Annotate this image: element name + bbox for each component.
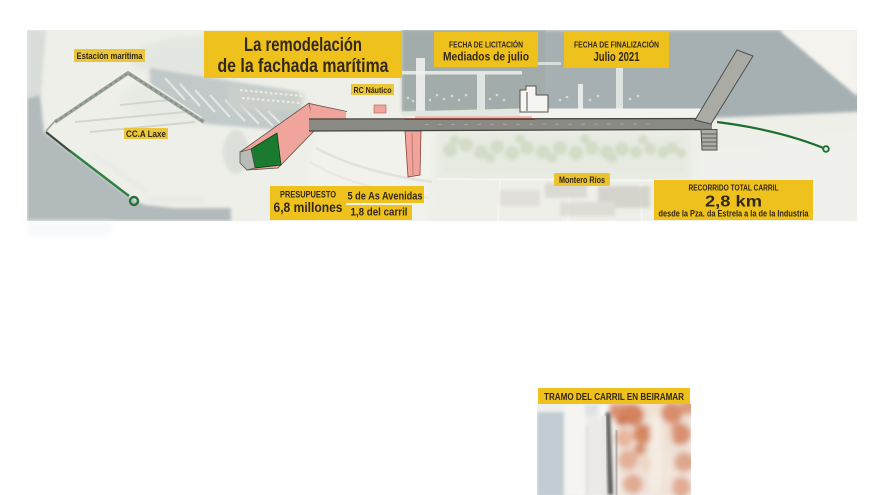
svg-text:Mediados de julio: Mediados de julio bbox=[443, 52, 529, 64]
svg-text:desde la Pza. da Estrela a la: desde la Pza. da Estrela a la de la Indu… bbox=[659, 209, 810, 219]
svg-text:TRAMO DEL CARRIL EN BEIRAMAR: TRAMO DEL CARRIL EN BEIRAMAR bbox=[544, 392, 685, 403]
svg-text:La remodelación: La remodelación bbox=[244, 35, 362, 56]
svg-text:5 de As Avenidas: 5 de As Avenidas bbox=[348, 191, 423, 203]
svg-text:RECORRIDO TOTAL CARRIL: RECORRIDO TOTAL CARRIL bbox=[689, 183, 779, 193]
svg-text:FECHA DE FINALIZACIÓN: FECHA DE FINALIZACIÓN bbox=[574, 41, 659, 50]
svg-text:CC.A Laxe: CC.A Laxe bbox=[126, 129, 166, 139]
svg-text:Montero Ríos: Montero Ríos bbox=[559, 175, 605, 186]
svg-text:PRESUPUESTO: PRESUPUESTO bbox=[280, 190, 336, 200]
svg-text:de la fachada marítima: de la fachada marítima bbox=[218, 56, 389, 77]
svg-text:1,8 del carril: 1,8 del carril bbox=[351, 207, 408, 219]
svg-text:6,8 millones: 6,8 millones bbox=[274, 199, 343, 215]
svg-text:Julio 2021: Julio 2021 bbox=[594, 50, 640, 64]
svg-text:Estación marítima: Estación marítima bbox=[77, 51, 144, 62]
svg-text:FECHA DE LICITACIÓN: FECHA DE LICITACIÓN bbox=[449, 41, 523, 50]
svg-text:RC Náutico: RC Náutico bbox=[354, 85, 392, 95]
